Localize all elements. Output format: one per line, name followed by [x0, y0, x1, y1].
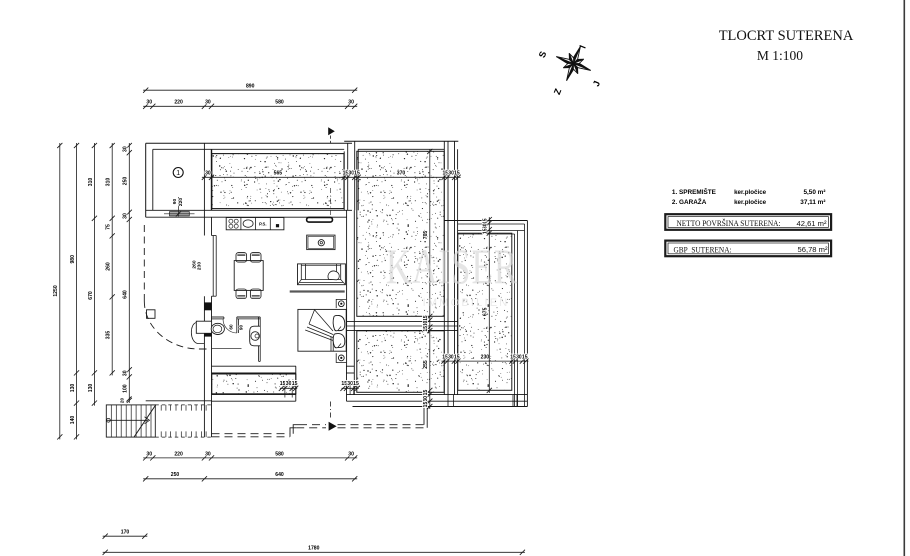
svg-text:90: 90: [172, 199, 178, 205]
svg-text:1. SPREMIŠTE: 1. SPREMIŠTE: [672, 187, 717, 196]
svg-text:15: 15: [454, 355, 460, 361]
svg-text:640: 640: [275, 472, 284, 478]
svg-text:TLOCRT SUTERENA: TLOCRT SUTERENA: [719, 28, 854, 44]
svg-text:GBP SUTERENA:: GBP SUTERENA:: [674, 244, 732, 254]
svg-text:30: 30: [146, 451, 152, 457]
svg-text:565: 565: [274, 171, 283, 177]
svg-text:60: 60: [228, 324, 233, 330]
svg-text:640: 640: [123, 290, 129, 299]
svg-text:30: 30: [348, 100, 354, 106]
svg-text:980: 980: [70, 255, 76, 264]
svg-text:230: 230: [481, 355, 490, 361]
svg-text:ker.pločice: ker.pločice: [734, 199, 767, 206]
svg-text:30: 30: [205, 451, 211, 457]
svg-text:KAISER: KAISER: [386, 240, 518, 294]
svg-text:310: 310: [106, 178, 112, 187]
svg-text:890: 890: [246, 84, 255, 90]
svg-text:5,50 m²: 5,50 m²: [803, 189, 825, 196]
svg-text:P.S.: P.S.: [259, 222, 266, 227]
svg-text:230: 230: [196, 262, 202, 270]
svg-text:670: 670: [88, 291, 94, 300]
svg-text:30: 30: [123, 146, 129, 152]
svg-text:255: 255: [423, 360, 429, 369]
svg-text:15: 15: [423, 315, 429, 321]
svg-text:130: 130: [88, 384, 94, 393]
svg-text:335: 335: [106, 331, 112, 340]
svg-text:30: 30: [286, 381, 292, 387]
svg-text:15: 15: [483, 228, 489, 234]
svg-text:130: 130: [70, 384, 76, 393]
svg-text:250: 250: [171, 472, 180, 478]
svg-text:30: 30: [423, 396, 429, 402]
svg-text:15: 15: [423, 390, 429, 396]
svg-text:37,11 m²: 37,11 m²: [800, 199, 825, 206]
svg-text:15: 15: [522, 355, 528, 361]
svg-text:30: 30: [348, 451, 354, 457]
svg-text:1250: 1250: [53, 285, 59, 296]
svg-text:30: 30: [205, 171, 211, 177]
svg-text:15: 15: [354, 171, 360, 177]
svg-text:NETTO POVRŠINA SUTERENA:: NETTO POVRŠINA SUTERENA:: [677, 218, 781, 228]
svg-text:90: 90: [239, 325, 244, 331]
svg-text:20: 20: [120, 398, 125, 404]
svg-text:1: 1: [176, 170, 180, 177]
svg-text:IMMOBILIEN: IMMOBILIEN: [423, 297, 510, 309]
svg-text:M 1:100: M 1:100: [757, 48, 803, 63]
svg-text:30: 30: [146, 100, 152, 106]
svg-text:220: 220: [174, 100, 183, 106]
svg-text:15: 15: [483, 218, 489, 224]
svg-text:75: 75: [106, 224, 112, 230]
svg-text:56,78 m²: 56,78 m²: [798, 245, 828, 254]
svg-text:15: 15: [280, 381, 286, 387]
svg-text:30: 30: [123, 213, 129, 219]
svg-text:140: 140: [70, 416, 76, 425]
svg-text:1780: 1780: [308, 546, 319, 552]
svg-text:15: 15: [353, 381, 359, 387]
svg-text:42,61 m²: 42,61 m²: [797, 219, 827, 228]
svg-text:220: 220: [174, 451, 183, 457]
svg-text:15: 15: [292, 381, 298, 387]
svg-text:2. GARAŽA: 2. GARAŽA: [672, 197, 707, 206]
svg-text:15: 15: [423, 326, 429, 332]
svg-text:580: 580: [275, 100, 284, 106]
svg-text:250: 250: [123, 177, 129, 186]
svg-text:30: 30: [483, 223, 489, 229]
svg-text:370: 370: [397, 171, 406, 177]
svg-text:170: 170: [121, 530, 130, 536]
svg-text:30: 30: [423, 321, 429, 327]
svg-text:705: 705: [423, 231, 429, 240]
svg-text:ker.pločice: ker.pločice: [734, 189, 767, 196]
svg-text:220: 220: [178, 198, 184, 206]
svg-text:30: 30: [205, 100, 211, 106]
svg-text:260: 260: [106, 262, 112, 271]
svg-text:15: 15: [423, 402, 429, 408]
svg-text:100: 100: [123, 384, 129, 393]
svg-text:15: 15: [454, 171, 460, 177]
svg-text:310: 310: [88, 178, 94, 187]
svg-text:30: 30: [123, 370, 129, 376]
svg-text:580: 580: [275, 451, 284, 457]
